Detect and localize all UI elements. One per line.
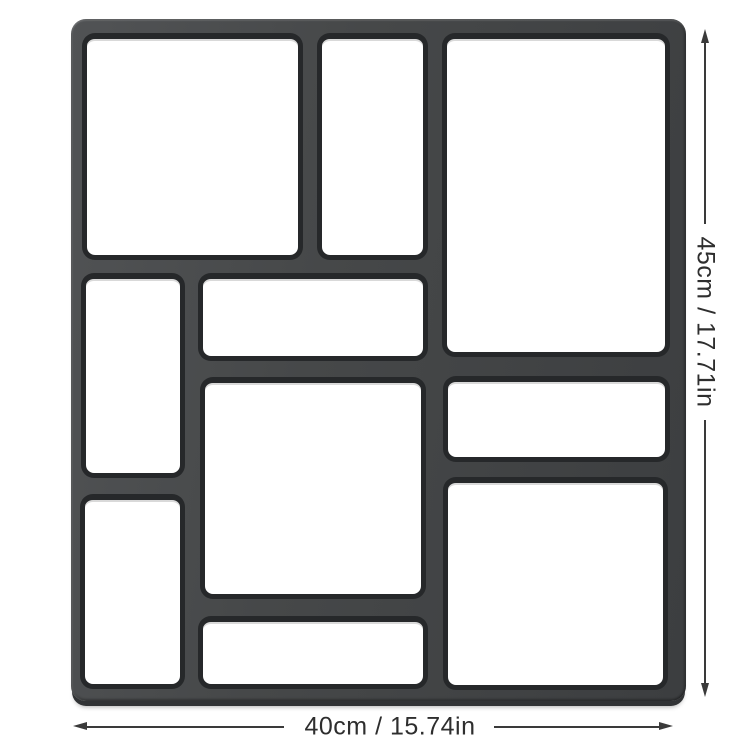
mold-cavity-right-bottom	[443, 477, 668, 690]
width-dimension-line-right	[494, 726, 659, 728]
mold-cavity-bottom-wide	[198, 616, 428, 689]
arrow-up-icon	[701, 29, 709, 43]
mold-cavity-top-left	[82, 33, 303, 260]
width-dimension-line-left	[86, 726, 284, 728]
mold-cavity-mid-left	[81, 273, 185, 478]
height-dimension-line-bottom	[704, 420, 706, 683]
width-dimension-label: 40cm / 15.74in	[297, 713, 484, 742]
mold-cavity-bottom-left	[80, 494, 185, 689]
arrow-left-icon	[73, 722, 87, 730]
paver-mold-frame	[71, 19, 686, 701]
mold-cavity-mid-wide	[198, 273, 428, 361]
arrow-down-icon	[701, 683, 709, 697]
height-dimension-label: 45cm / 17.71in	[691, 229, 720, 416]
height-dimension-line-top	[704, 42, 706, 224]
mold-cavity-top-right	[442, 33, 670, 357]
product-diagram: 45cm / 17.71in 40cm / 15.74in	[0, 0, 750, 750]
mold-cavity-right-mid	[443, 376, 670, 462]
arrow-right-icon	[659, 722, 673, 730]
mold-cavity-center	[200, 377, 426, 599]
mold-cavity-top-middle	[317, 33, 428, 260]
